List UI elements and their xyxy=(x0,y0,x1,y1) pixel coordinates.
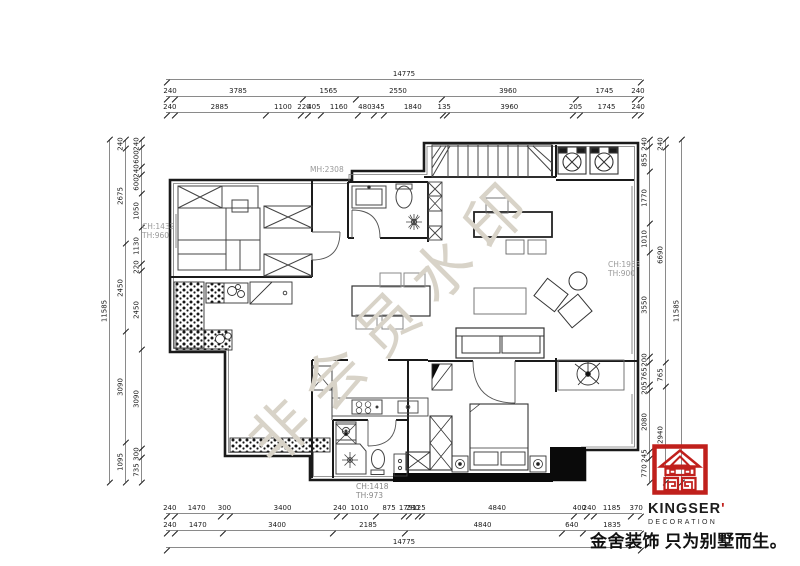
interior-walls xyxy=(170,145,638,478)
dim-bottom-row1: 2401470300340024010108751752801254840400… xyxy=(166,502,642,514)
dim-segment: 11585 xyxy=(682,140,693,482)
brand-apostrophe: ' xyxy=(721,501,725,517)
dim-value: 1185 xyxy=(603,505,621,512)
dim-top-overall: 14775 xyxy=(166,68,642,80)
dim-value: 765 xyxy=(641,368,648,381)
dim-value: 4840 xyxy=(488,505,506,512)
dim-value: 345 xyxy=(371,104,384,111)
dim-value: 1160 xyxy=(330,104,348,111)
dim-value: 770 xyxy=(641,464,648,477)
dim-value: 240 xyxy=(631,88,644,95)
kingser-logo: KINGSER' DECORATION xyxy=(648,444,712,526)
dim-value: 600 xyxy=(133,178,140,191)
dim-value: 240 xyxy=(631,104,644,111)
dim-value: 765 xyxy=(657,368,664,381)
dim-value: 14775 xyxy=(393,539,415,546)
label-ch-bottom-th: TH:973 xyxy=(356,491,389,500)
dim-segment: 735 xyxy=(142,458,153,482)
dim-top-row3: 2402885110022040511604803451840135396020… xyxy=(166,101,642,113)
balcony-garden xyxy=(174,282,330,452)
dim-value: 1745 xyxy=(595,88,613,95)
dim-value: 3960 xyxy=(500,104,518,111)
brand-name: KINGSER' xyxy=(648,502,712,517)
label-ch-bottom: CH:1418 TH:973 xyxy=(356,482,389,500)
dining-set xyxy=(352,273,430,329)
window-lines xyxy=(176,186,632,452)
dim-segment: 1770 xyxy=(650,172,661,224)
dim-value: 3960 xyxy=(499,88,517,95)
dim-value: 11585 xyxy=(673,300,680,322)
dim-value: 240 xyxy=(163,88,176,95)
dim-value: 1770 xyxy=(641,189,648,207)
dim-value: 640 xyxy=(565,522,578,529)
dim-value: 3550 xyxy=(641,296,648,314)
living-area xyxy=(456,272,592,358)
dim-value: 1010 xyxy=(350,505,368,512)
dim-value: 11585 xyxy=(101,300,108,322)
dim-value: 205 xyxy=(569,104,582,111)
washing-machines xyxy=(558,147,618,174)
dim-value: 1130 xyxy=(133,237,140,255)
dim-value: 480 xyxy=(358,104,371,111)
dim-value: 370 xyxy=(630,505,643,512)
floorplan-page: 非会员水印 14775 24037851565255039601745240 2… xyxy=(0,0,800,566)
dim-value: 125 xyxy=(412,505,425,512)
dim-value: 600 xyxy=(133,151,140,164)
outer-walls xyxy=(170,143,638,480)
dim-value: 240 xyxy=(583,505,596,512)
slogan: 金舍装饰 只为别墅而生。 xyxy=(590,527,787,552)
label-ch-right: CH:1953 TH:900 xyxy=(608,260,641,278)
dim-value: 1010 xyxy=(641,230,648,248)
dim-value: 1565 xyxy=(320,88,338,95)
dim-value: 2675 xyxy=(117,188,124,206)
stairs xyxy=(432,145,552,177)
label-ch-left-th: TH:960 xyxy=(142,231,175,240)
dim-value: 135 xyxy=(437,104,450,111)
dim-segment: 3090 xyxy=(142,350,153,449)
dim-value: 1100 xyxy=(274,104,292,111)
label-mh: MH:2308 xyxy=(310,165,344,174)
dim-value: 240 xyxy=(163,104,176,111)
hall-cabinet xyxy=(428,182,442,240)
dim-value: 240 xyxy=(163,522,176,529)
small-bathroom xyxy=(336,422,407,476)
dim-value: 4840 xyxy=(474,522,492,529)
dim-segment: 2450 xyxy=(142,271,153,350)
dim-value: 2940 xyxy=(657,426,664,444)
dim-value: 2550 xyxy=(389,88,407,95)
dim-value: 855 xyxy=(641,153,648,166)
dim-value: 3400 xyxy=(268,522,286,529)
label-ch-left-ch: CH:1432 xyxy=(142,222,175,231)
dim-right-outer: 11585 xyxy=(681,140,693,482)
label-ch-left: CH:1432 TH:960 xyxy=(142,222,175,240)
dim-segment: 6690 xyxy=(666,148,677,363)
dim-value: 735 xyxy=(133,464,140,477)
plant-niche xyxy=(558,360,624,390)
label-ch-right-ch: CH:1953 xyxy=(608,260,641,269)
brand-subtitle: DECORATION xyxy=(648,519,712,526)
dim-value: 1840 xyxy=(404,104,422,111)
dim-bottom-overall: 14775 xyxy=(166,536,642,548)
dim-value: 3785 xyxy=(229,88,247,95)
dim-value: 1050 xyxy=(133,202,140,220)
dim-value: 2450 xyxy=(133,301,140,319)
kitchen xyxy=(312,366,428,444)
dim-segment: 3550 xyxy=(650,253,661,357)
dim-value: 2080 xyxy=(641,413,648,431)
dim-value: 875 xyxy=(382,505,395,512)
main-bathroom xyxy=(352,184,422,230)
dim-value: 2450 xyxy=(117,279,124,297)
dim-segment: 2450 xyxy=(126,244,137,332)
dim-value: 3400 xyxy=(274,505,292,512)
dim-segment: 3090 xyxy=(126,332,137,443)
dim-left-inner: 2406002406001050113022024503090300735 xyxy=(141,140,153,482)
dim-value: 2185 xyxy=(359,522,377,529)
dim-value: 300 xyxy=(218,505,231,512)
dim-value: 1095 xyxy=(117,453,124,471)
dim-value: 2885 xyxy=(211,104,229,111)
kingser-seal-icon xyxy=(652,444,708,495)
dim-bottom-row2: 24014703400218548406401835 xyxy=(166,519,642,531)
dim-value: 3090 xyxy=(133,390,140,408)
label-ch-right-th: TH:900 xyxy=(608,269,641,278)
dim-value: 1745 xyxy=(598,104,616,111)
dim-value: 1470 xyxy=(188,505,206,512)
dim-value: 240 xyxy=(333,505,346,512)
dim-top-row2: 24037851565255039601745240 xyxy=(166,85,642,97)
kitchen-island xyxy=(474,198,552,254)
dim-value: 3090 xyxy=(117,379,124,397)
tatami-room xyxy=(178,186,312,276)
dim-value: 240 xyxy=(163,505,176,512)
dim-value: 14775 xyxy=(393,71,415,78)
dim-value: 6690 xyxy=(657,246,664,264)
label-ch-bottom-ch: CH:1418 xyxy=(356,482,389,491)
dim-value: 405 xyxy=(307,104,320,111)
dim-value: 1470 xyxy=(189,522,207,529)
